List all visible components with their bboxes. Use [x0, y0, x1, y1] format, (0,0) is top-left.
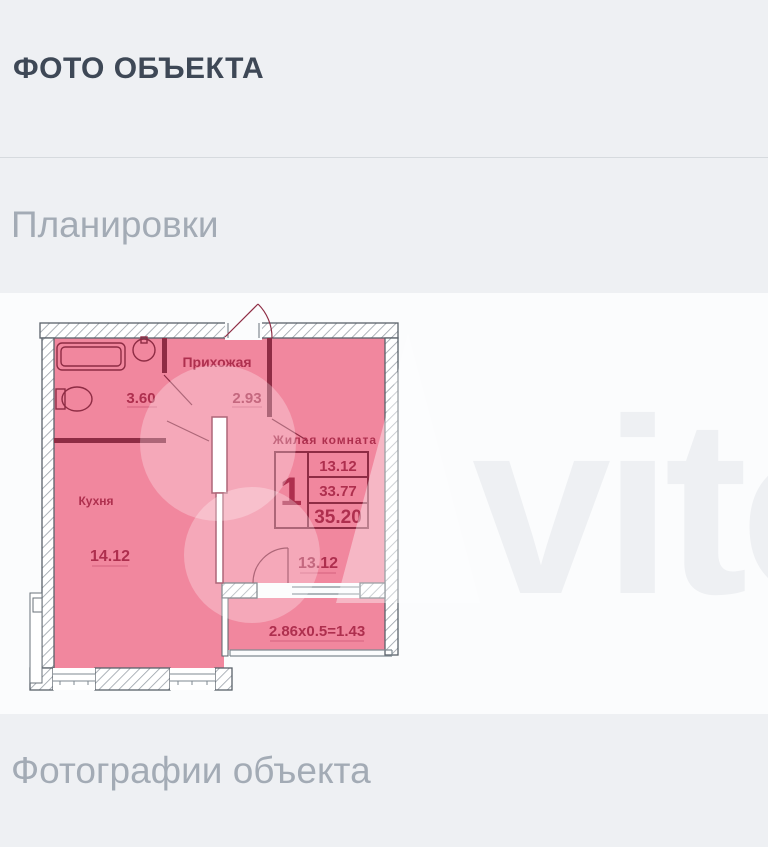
section-title-floorplans: Планировки	[11, 204, 219, 246]
floorplan-drawing: 1 13.12 33.77 35.20 Прихожая 2.93 3.60 К…	[0, 293, 768, 714]
exterior-jut	[30, 593, 42, 683]
page-title: ФОТО ОБЪЕКТА	[13, 52, 264, 86]
avito-watermark: vito	[140, 333, 768, 646]
stamp-area-wo-balcony: 33.77	[319, 483, 357, 500]
watermark-text: vito	[472, 367, 768, 646]
floorplan-photo[interactable]: 1 13.12 33.77 35.20 Прихожая 2.93 3.60 К…	[0, 293, 768, 714]
entrance-opening	[225, 321, 262, 340]
section-title-photos: Фотографии объекта	[11, 750, 371, 792]
kitchen-area: 14.12	[90, 548, 130, 565]
stamp-total-area: 35.20	[314, 507, 362, 528]
kitchen-label: Кухня	[78, 494, 113, 508]
stamp-living-area: 13.12	[319, 458, 357, 475]
balcony-glazing	[230, 650, 392, 656]
balcony-formula: 2.86x0.5=1.43	[269, 623, 365, 640]
divider	[0, 157, 768, 158]
